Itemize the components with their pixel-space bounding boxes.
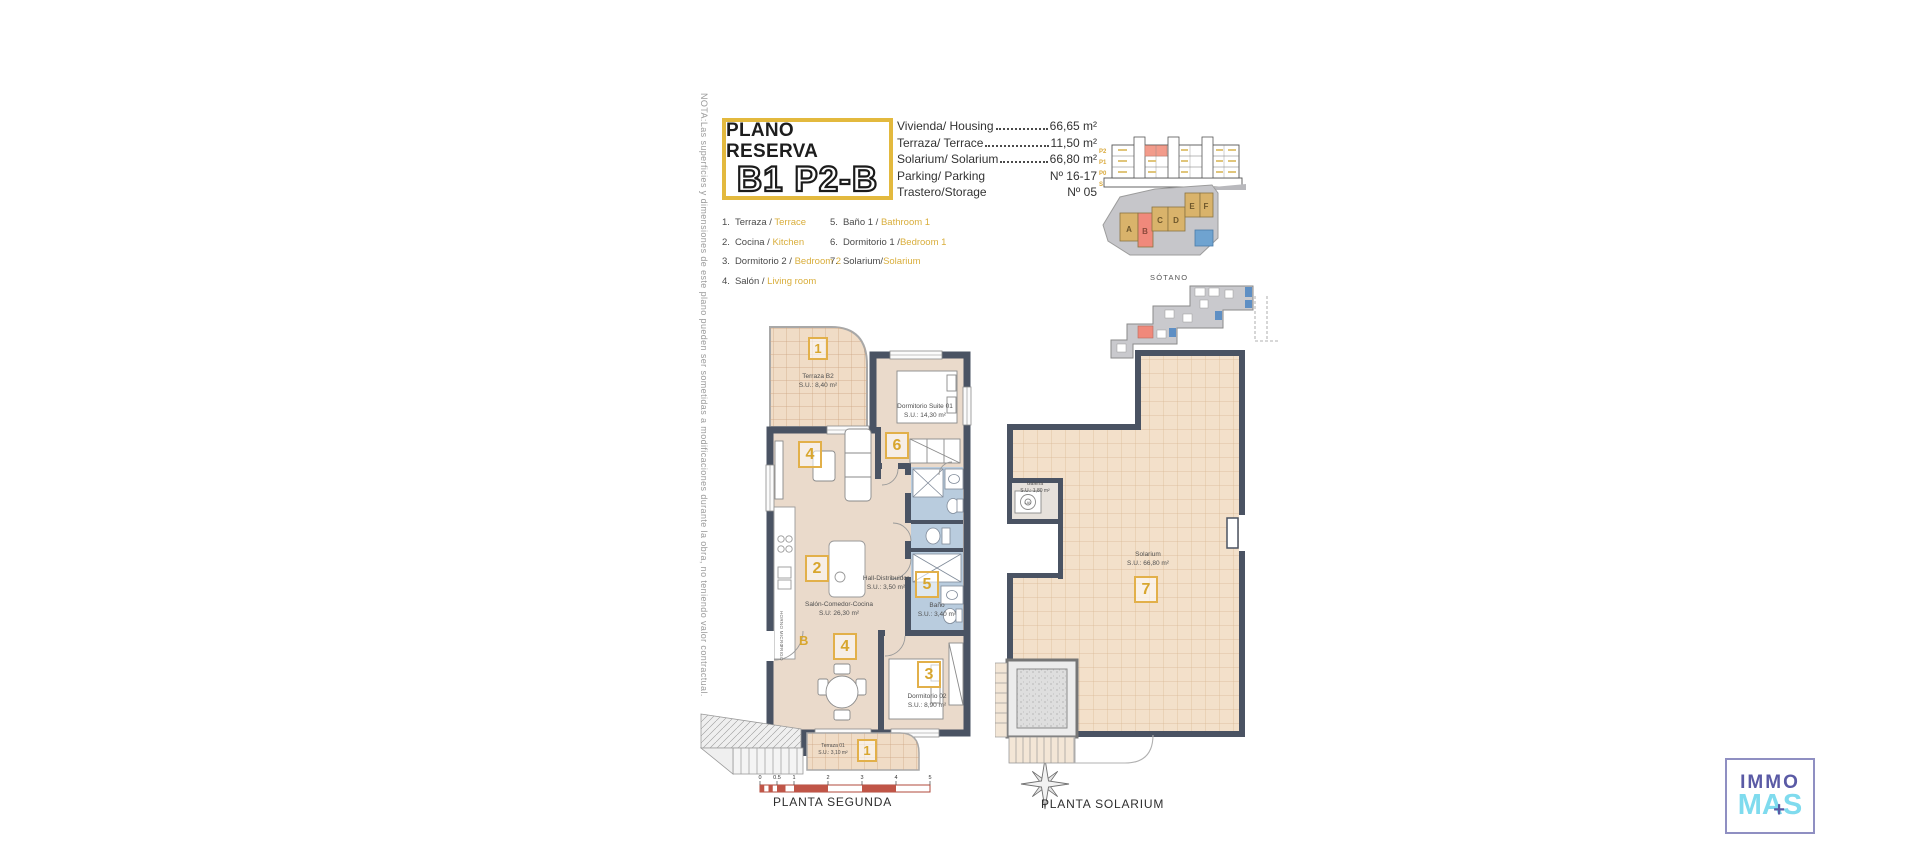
legend-item: 7.Solarium/Solarium xyxy=(830,256,946,276)
logo-mas-text: MAS + xyxy=(1738,792,1802,820)
room-number-solarium: 7 xyxy=(1134,576,1158,603)
appliance-label-horno: HORNO MICRO xyxy=(779,611,784,647)
scale-tick: 4 xyxy=(894,775,897,781)
sideboard xyxy=(775,441,783,499)
room-label-solarium: Solarium S.U.: 66,80 m² xyxy=(1107,551,1189,569)
room-label-hall: Hall-Distribuidor S.U.: 3,50 m² xyxy=(857,575,915,593)
room-label-salon: Salón-Comedor-Cocina S.U: 26,30 m² xyxy=(801,601,877,619)
floor-label: P2 xyxy=(1099,149,1107,155)
sotano-label: SÓTANO xyxy=(1150,273,1188,282)
sofa xyxy=(845,429,871,501)
unit-specs: Vivienda/ Housing66,65 m² Terraza/ Terra… xyxy=(897,117,1097,199)
legend-item: 4.Salón / Living room xyxy=(722,276,830,296)
planta-solarium-caption: PLANTA SOLARIUM xyxy=(1041,797,1164,811)
room-number-terraza-b2: 1 xyxy=(808,337,828,360)
block-label: A xyxy=(1126,225,1132,234)
ground-outline xyxy=(1074,735,1153,763)
planta-segunda-caption: PLANTA SEGUNDA xyxy=(773,795,892,809)
spec-value: Nº 16-17 xyxy=(1050,169,1097,183)
scale-tick: 3 xyxy=(860,775,863,781)
legend-item: 3.Dormitorio 2 / Bedroom 2 xyxy=(722,256,830,276)
room-label-dormitorio-suite: Dormitorio Suite 01 S.U.: 14,30 m² xyxy=(887,403,963,421)
floor-label: P0 xyxy=(1099,171,1107,177)
spec-value: 66,80 m² xyxy=(1050,152,1097,166)
planta-solarium-plan: LAV xyxy=(995,345,1295,815)
legend-item: 5.Baño 1 / Bathroom 1 xyxy=(830,217,946,237)
scale-tick: 1 xyxy=(792,775,795,781)
room-number-terraza-01: 1 xyxy=(857,739,877,762)
spec-label: Solarium/ Solarium xyxy=(897,152,998,166)
spec-label: Trastero/Storage xyxy=(897,185,987,199)
spec-row: Trastero/StorageNº 05 xyxy=(897,183,1097,199)
scale-tick: 0.5 xyxy=(773,775,781,781)
legend-item: 6.Dormitorio 1 /Bedroom 1 xyxy=(830,237,946,257)
room-number-dormitorio-suite: 6 xyxy=(885,432,909,459)
legend-item: 2.Cocina / Kitchen xyxy=(722,237,830,257)
room-label-terraza-b2: Terraza B2 S.U.: 8,40 m² xyxy=(783,373,853,391)
plan-title: PLANO RESERVA xyxy=(726,121,889,163)
entrance-label: B xyxy=(799,633,808,648)
unit-code: B1 P2-B xyxy=(737,162,878,197)
room-number-dining: 4 xyxy=(833,633,857,660)
spec-row: Terraza/ Terrace11,50 m² xyxy=(897,133,1097,149)
floor-label: P1 xyxy=(1099,160,1107,166)
site-plan-diagram: A B C D E F xyxy=(1100,183,1225,265)
immomas-logo: IMMO MAS + xyxy=(1725,758,1815,834)
spec-value: 11,50 m² xyxy=(1051,136,1097,150)
spec-value: 66,65 m² xyxy=(1050,119,1097,133)
spec-label: Vivienda/ Housing xyxy=(897,119,994,133)
room-label-bano: Baño S.U.: 3,40 m² xyxy=(912,602,962,620)
room-number-bano: 5 xyxy=(915,571,939,598)
block-label: C xyxy=(1157,216,1163,225)
spec-label: Terraza/ Terrace xyxy=(897,136,983,150)
room-label-terraza-01: Terraza 01 S.U.: 3,10 m² xyxy=(811,743,855,757)
solarium-door xyxy=(1227,518,1238,548)
scale-tick: 0 xyxy=(758,775,761,781)
spec-row: Solarium/ Solarium66,80 m² xyxy=(897,150,1097,166)
spec-value: Nº 05 xyxy=(1067,185,1097,199)
lav-label: LAV xyxy=(1025,501,1032,505)
logo-plus-icon: + xyxy=(1773,801,1785,820)
scale-tick: 2 xyxy=(826,775,829,781)
room-label-galeria: Galería S.U.: 1,80 m² xyxy=(1009,481,1061,495)
block-label: B xyxy=(1142,227,1148,236)
toilet xyxy=(926,528,940,544)
block-label: F xyxy=(1204,202,1209,211)
block-label: D xyxy=(1173,216,1179,225)
room-number-living: 4 xyxy=(798,441,822,468)
appliance-label-frigo: FRIGO xyxy=(779,645,784,661)
scale-bar: 0 0.5 1 2 3 4 5 xyxy=(758,775,931,792)
room-number-kitchen: 2 xyxy=(805,555,829,582)
block-label: E xyxy=(1189,202,1195,211)
room-legend: 1.Terraza / Terrace 2.Cocina / Kitchen 3… xyxy=(722,217,946,295)
plan-title-box: PLANO RESERVA B1 P2-B xyxy=(722,118,893,200)
stairwell-box xyxy=(1007,660,1077,737)
room-number-dormitorio-02: 3 xyxy=(917,661,941,688)
room-label-dormitorio-02: Dormitorio 02 S.U.: 8,90 m² xyxy=(895,693,959,711)
floorplan-sheet: NOTA:Las superficies y dimensiones de es… xyxy=(0,0,1920,860)
spec-row: Vivienda/ Housing66,65 m² xyxy=(897,117,1097,133)
scale-tick: 5 xyxy=(928,775,931,781)
kitchen-counter xyxy=(774,507,795,659)
planta-segunda-plan: 0 0.5 1 2 3 4 5 1 Terraza B2 S.U.: 8,40 … xyxy=(695,315,1005,815)
legend-item: 1.Terraza / Terrace xyxy=(722,217,830,237)
spec-label: Parking/ Parking xyxy=(897,169,985,183)
spec-row: Parking/ ParkingNº 16-17 xyxy=(897,166,1097,182)
